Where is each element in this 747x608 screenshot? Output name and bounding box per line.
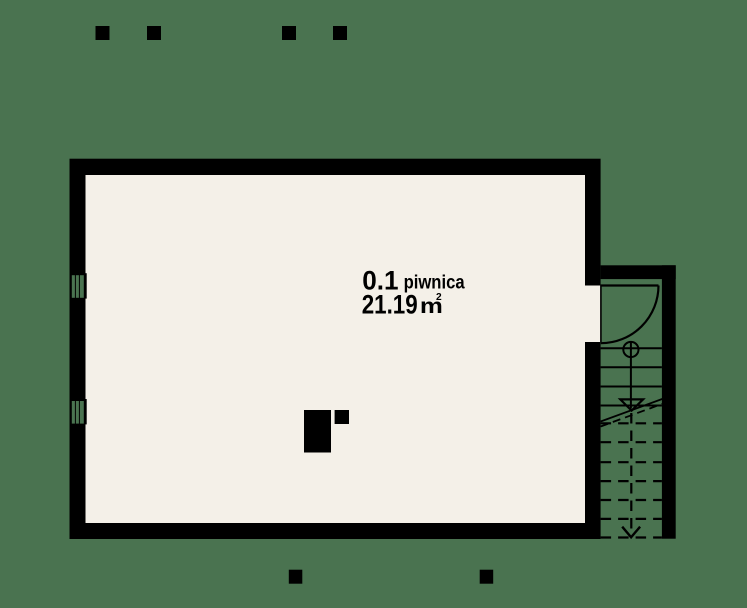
svg-text:21.19: 21.19 <box>362 289 418 319</box>
svg-text:2: 2 <box>436 292 442 303</box>
